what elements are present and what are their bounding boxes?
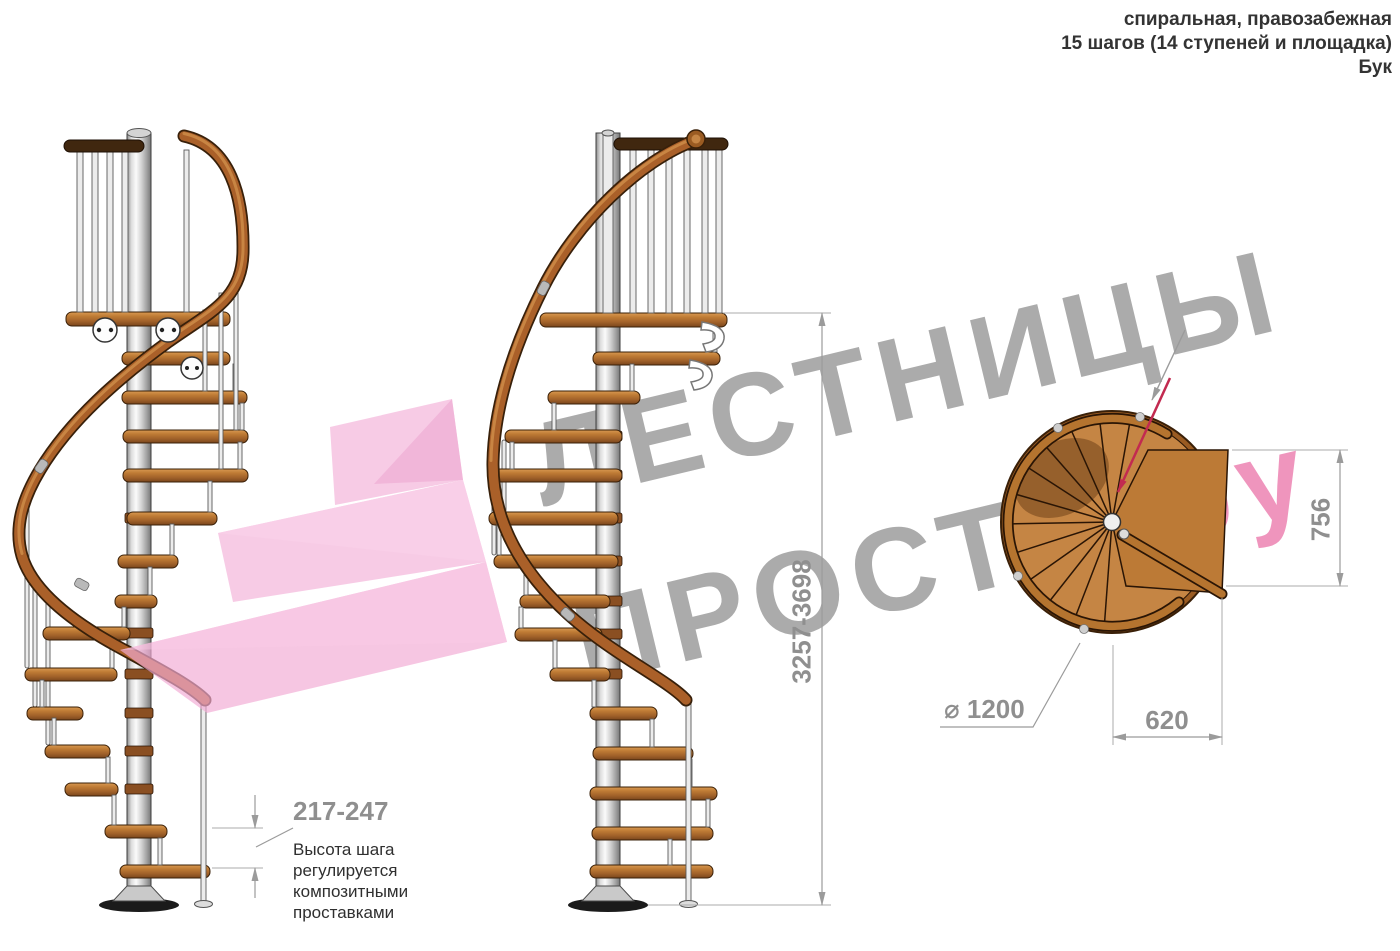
baluster <box>77 152 83 312</box>
baluster <box>122 152 128 312</box>
base-flange <box>113 886 165 901</box>
staircase-drawing <box>0 0 1400 951</box>
baluster <box>219 293 223 469</box>
step-height-leader <box>256 828 293 847</box>
drawing-canvas: ЛЕСТНИЦЫ ПРОСТО.ру <box>0 0 1400 951</box>
dim-platform-depth: 756 <box>1306 475 1337 565</box>
spec-steps: 15 шагов (14 ступеней и площадка) <box>1061 32 1392 56</box>
pole-cap <box>127 129 151 138</box>
dim-platform-width: 620 <box>1117 705 1217 736</box>
dim-total-height: 3257-3698 <box>787 537 818 707</box>
baluster <box>716 150 722 313</box>
plan-rail-knob <box>1119 529 1129 539</box>
newel-post <box>603 133 613 313</box>
handrail-end-cap-center <box>692 135 701 144</box>
post-foot <box>195 901 213 908</box>
newel-cap <box>602 130 614 136</box>
platform <box>540 313 727 327</box>
baluster <box>702 150 708 313</box>
rail-support-post <box>686 702 691 902</box>
baluster <box>33 580 37 707</box>
left-staircase-side-view <box>19 129 248 913</box>
baluster <box>666 150 672 313</box>
spec-header: спиральная, правозабежная 15 шагов (14 с… <box>1061 8 1392 80</box>
post-foot <box>680 901 698 908</box>
handrail-connector <box>73 577 90 592</box>
base-flange <box>582 886 634 901</box>
plan-center-pole <box>1104 514 1121 531</box>
step-height-note: Высота шага регулируется композитными пр… <box>293 839 408 923</box>
baluster <box>684 150 690 313</box>
rail-support-post <box>201 703 206 903</box>
dim-step-height: 217-247 <box>293 796 388 827</box>
baluster <box>107 152 113 312</box>
watermark-arrow <box>120 399 507 713</box>
spec-material: Бук <box>1061 56 1392 80</box>
spec-type: спиральная, правозабежная <box>1061 8 1392 32</box>
plan-view <box>1001 411 1228 634</box>
middle-staircase-side-view <box>489 130 728 912</box>
baluster <box>184 150 189 312</box>
dim-diameter: ⌀ 1200 <box>944 694 1025 725</box>
baluster <box>648 150 654 313</box>
baluster <box>92 152 98 312</box>
platform-handrail <box>64 140 144 152</box>
plan-leader-arrow <box>1152 330 1185 400</box>
